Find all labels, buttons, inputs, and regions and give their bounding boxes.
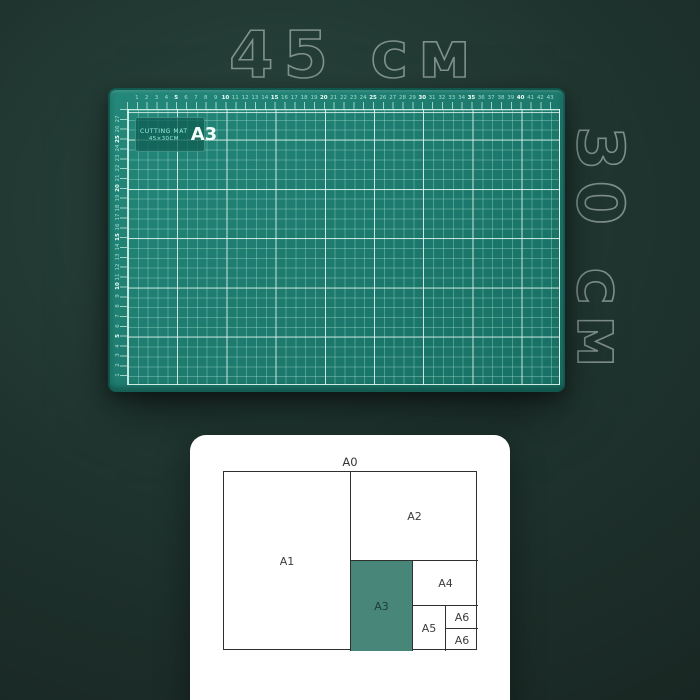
size-cell-a2: A2 <box>351 472 478 561</box>
size-chart-card: A0 A1 A2 A3 A4 A5 A6 A6 <box>190 435 510 700</box>
size-cell-a4: A4 <box>413 561 478 606</box>
size-cell-a5: A5 <box>413 606 446 651</box>
width-dimension-label: 45 см <box>229 24 481 88</box>
size-cell-a3-highlighted: A3 <box>351 561 413 651</box>
size-cell-a6-bottom: A6 <box>446 629 478 651</box>
mat-badge-size: 45×30CM <box>149 136 179 142</box>
height-dimension-label: 30 см <box>567 126 631 378</box>
left-ruler-number: 2 <box>112 359 124 371</box>
size-cell-a6-top: A6 <box>446 606 478 629</box>
product-image: 45 см 30 см 1234567891011121314151617181… <box>0 0 700 700</box>
left-ruler-number: 27 <box>112 113 124 125</box>
left-ruler-number: 9 <box>112 290 124 302</box>
left-ruler-number: 16 <box>112 221 124 233</box>
top-ruler-number: 43 <box>544 94 556 102</box>
top-ruler-ticks <box>127 102 560 109</box>
chart-outer-label: A0 <box>224 455 476 469</box>
size-cell-a1: A1 <box>224 472 351 651</box>
mat-badge-format: A3 <box>191 126 217 144</box>
mat-label-badge: CUTTING MAT 45×30CM A3 <box>135 117 205 152</box>
mat-badge-title: CUTTING MAT <box>140 128 188 135</box>
left-ruler-number: 23 <box>112 152 124 164</box>
paper-size-chart: A0 A1 A2 A3 A4 A5 A6 A6 <box>223 471 477 650</box>
cutting-mat: 1234567891011121314151617181920212223242… <box>108 88 565 392</box>
